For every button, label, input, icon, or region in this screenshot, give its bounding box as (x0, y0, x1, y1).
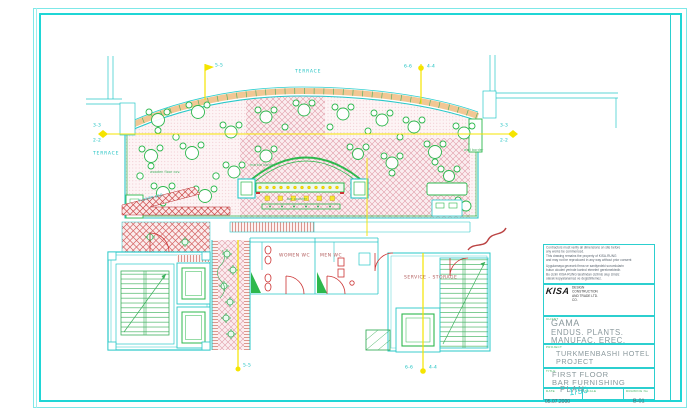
date-value: 05.07.2000 (545, 399, 570, 405)
annotation: bar counter (287, 197, 307, 201)
section-marker-5-5-bottom: 5-5 (243, 363, 251, 368)
titleblock-drawing-no: DRAWING No B-01 (623, 388, 655, 400)
titleblock-right-rule (670, 13, 671, 402)
client-label: CLIENT (546, 318, 558, 321)
annotation: wooden floor cov. (150, 170, 180, 174)
section-marker-3-3-right: 3-3 (500, 123, 508, 128)
section-marker-4-4-bottom: 4-4 (429, 365, 437, 370)
section-marker-3-3-left: 3-3 (93, 123, 101, 128)
titleblock-company: KISA DESIGN CONSTRUCTION AND TRADE LTD. … (543, 284, 655, 316)
annotation: marble border (250, 163, 275, 167)
titleblock-client: CLIENT GAMA ENDUS. PLANTS. MANUFAC. EREC… (543, 316, 655, 344)
section-marker-6-6-top: 6-6 (404, 64, 412, 69)
label-women-wc: WOMEN WC (279, 253, 310, 258)
titleblock-notes: Contractors must verify all dimensions o… (543, 244, 655, 284)
note-line: olarak kopyalanamaz ve degistirilemez. (546, 277, 652, 281)
label-service-storage: SERVICE - STORAGE (404, 275, 457, 280)
date-label: DATE (546, 390, 555, 393)
label-terrace-top: TERRACE (295, 69, 321, 74)
company-logo: KISA (545, 286, 570, 296)
drawing-no-label: DRAWING No (626, 390, 648, 393)
project-line: PROJECT (556, 358, 654, 366)
titleblock-project: PROJECT TURKMENBASHI HOTEL PROJECT (543, 344, 655, 368)
drawing-no-value: B-01 (633, 398, 645, 404)
company-name-line: DESIGN CONSTRUCTION (572, 286, 604, 294)
section-marker-5-5-top: 5-5 (215, 63, 223, 68)
section-marker-4-4-top: 4-4 (427, 64, 435, 69)
label-terrace-left: TERRACE (93, 151, 119, 156)
section-marker-6-6-bottom: 6-6 (405, 365, 413, 370)
sheet-border-left-double (36, 8, 37, 408)
drawing-sheet: { "plan": { "terrace_top": "TERRACE", "t… (0, 0, 700, 416)
section-marker-2-2-right: 2-2 (500, 138, 508, 143)
project-label: PROJECT (546, 346, 562, 349)
annotation: wall border (464, 148, 483, 152)
company-name-line: AND TRADE LTD. CO. (572, 294, 604, 302)
title-label: TITLE (546, 370, 556, 373)
section-marker-2-2-left: 2-2 (93, 138, 101, 143)
label-men-wc: MEN WC (320, 253, 342, 258)
